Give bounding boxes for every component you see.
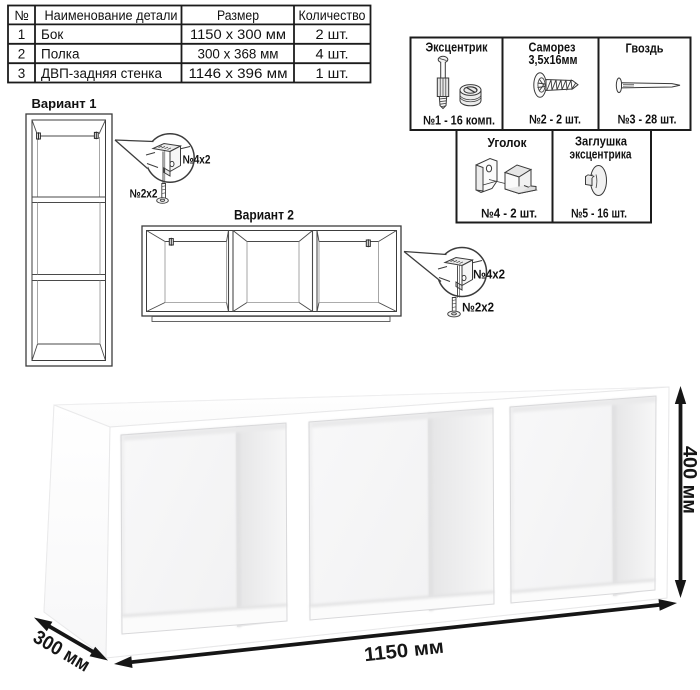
svg-text:1 шт.: 1 шт.	[316, 66, 349, 81]
svg-text:№2х2: №2х2	[462, 301, 494, 315]
svg-text:300 х 368 мм: 300 х 368 мм	[198, 46, 279, 61]
svg-text:эксцентрика: эксцентрика	[570, 148, 633, 162]
svg-text:Эксцентрик: Эксцентрик	[426, 41, 489, 55]
svg-text:ДВП-задняя стенка: ДВП-задняя стенка	[41, 66, 162, 81]
svg-text:1150 х 300 мм: 1150 х 300 мм	[190, 27, 286, 42]
svg-text:Вариант 1: Вариант 1	[32, 96, 97, 111]
svg-text:Заглушка: Заглушка	[575, 135, 628, 149]
svg-text:2 шт.: 2 шт.	[316, 27, 349, 42]
svg-text:Уголок: Уголок	[488, 136, 528, 150]
svg-text:3,5х16мм: 3,5х16мм	[529, 53, 578, 67]
svg-text:Наименование детали: Наименование детали	[45, 8, 178, 23]
svg-text:№3 - 28 шт.: №3 - 28 шт.	[618, 113, 677, 127]
svg-text:Размер: Размер	[217, 8, 259, 23]
svg-text:№2 - 2 шт.: №2 - 2 шт.	[529, 113, 581, 127]
svg-text:1: 1	[18, 27, 26, 42]
svg-text:Вариант 2: Вариант 2	[234, 208, 294, 223]
svg-text:1150 мм: 1150 мм	[363, 636, 445, 667]
svg-text:3: 3	[18, 66, 26, 81]
svg-text:№: №	[14, 8, 28, 23]
svg-text:2: 2	[18, 46, 26, 61]
svg-text:Полка: Полка	[41, 46, 80, 61]
svg-text:4 шт.: 4 шт.	[316, 46, 349, 61]
svg-text:Гвоздь: Гвоздь	[626, 42, 664, 56]
svg-text:Количество: Количество	[299, 8, 366, 23]
svg-text:№4х2: №4х2	[473, 268, 505, 282]
svg-text:№5 - 16 шт.: №5 - 16 шт.	[571, 207, 627, 221]
svg-text:№1 - 16 комп.: №1 - 16 комп.	[423, 114, 495, 128]
svg-text:№4 - 2 шт.: №4 - 2 шт.	[481, 207, 537, 221]
svg-text:400 мм: 400 мм	[679, 446, 700, 514]
svg-text:№4х2: №4х2	[183, 153, 211, 167]
svg-text:№2х2: №2х2	[130, 187, 158, 201]
svg-text:1146 х 396 мм: 1146 х 396 мм	[189, 66, 288, 81]
svg-text:Бок: Бок	[41, 27, 63, 42]
